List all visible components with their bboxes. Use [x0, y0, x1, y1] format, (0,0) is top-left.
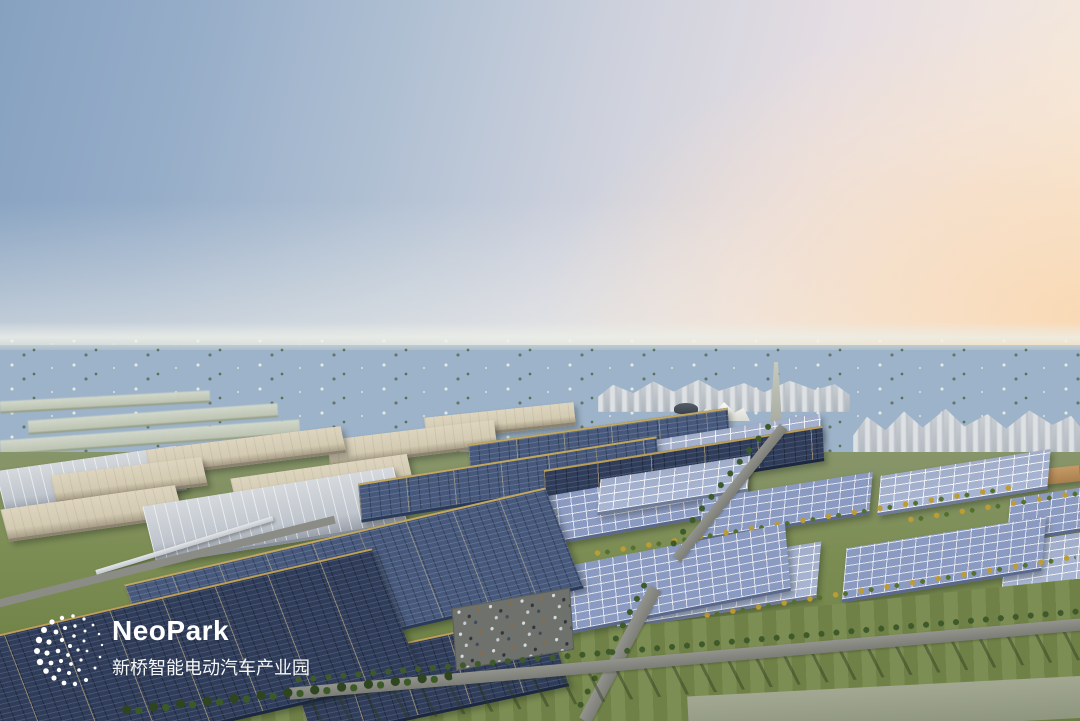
brand-subtitle: 新桥智能电动汽车产业园: [112, 654, 310, 680]
sky-gradient: [0, 0, 1080, 345]
logo-lockup: NeoPark 新桥智能电动汽车产业园: [34, 604, 374, 700]
brand-name: NeoPark: [112, 616, 310, 647]
dotted-globe-icon: [34, 610, 110, 690]
neopark-aerial-render: NeoPark 新桥智能电动汽车产业园: [0, 0, 1080, 721]
